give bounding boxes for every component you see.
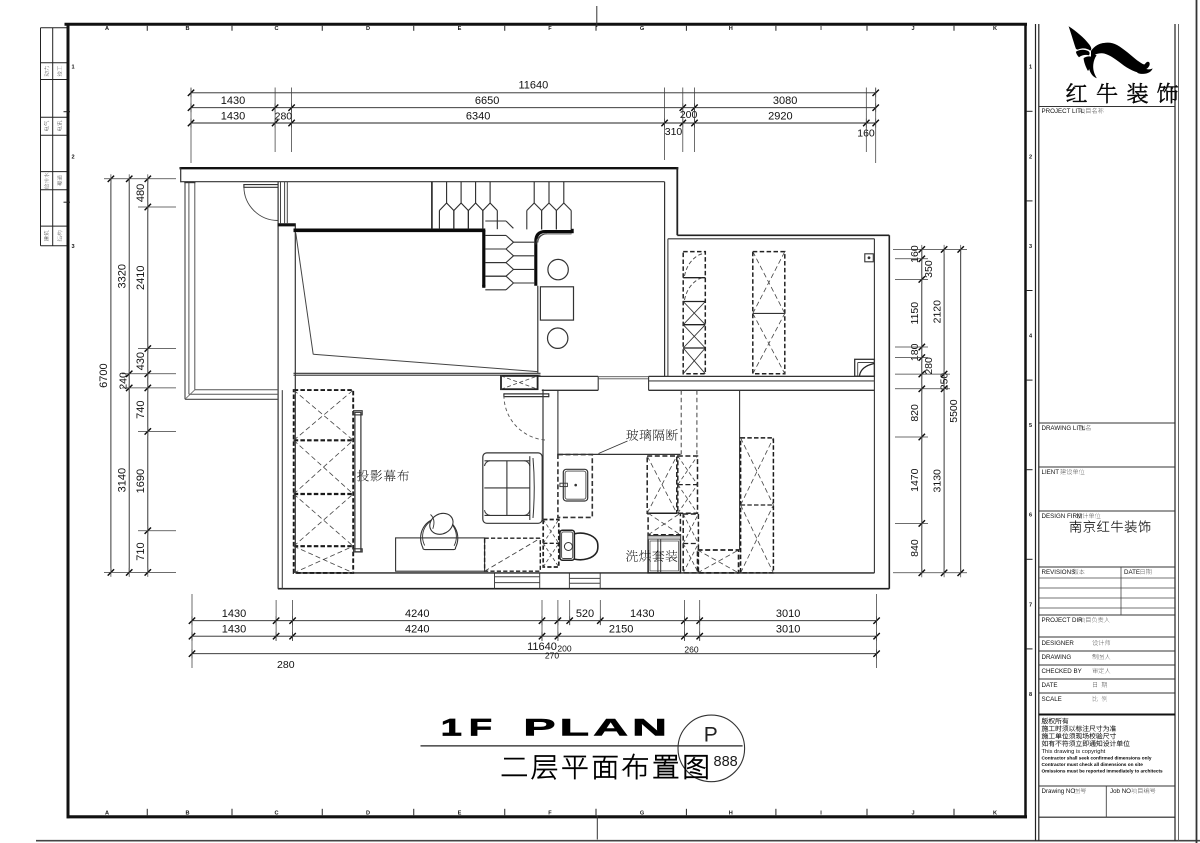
- svg-text:F: F: [548, 810, 552, 816]
- svg-text:3130: 3130: [932, 469, 944, 493]
- svg-text:2: 2: [1029, 154, 1032, 160]
- svg-text:G: G: [640, 810, 644, 816]
- svg-text:480: 480: [135, 184, 147, 202]
- svg-text:2410: 2410: [135, 266, 147, 290]
- svg-text:DATE: DATE: [1124, 569, 1140, 576]
- svg-text:J: J: [911, 810, 914, 816]
- svg-text:DESIGNER: DESIGNER: [1042, 640, 1075, 647]
- svg-text:A: A: [105, 810, 109, 816]
- svg-text:310: 310: [665, 126, 683, 138]
- svg-text:280: 280: [275, 110, 293, 122]
- svg-text:3320: 3320: [117, 264, 129, 288]
- svg-text:520: 520: [576, 608, 594, 620]
- svg-text:3080: 3080: [773, 95, 797, 107]
- svg-text:1430: 1430: [630, 608, 654, 620]
- svg-text:280: 280: [923, 357, 935, 375]
- svg-text:Omissions must be reported imm: Omissions must be reported immediately t…: [1042, 769, 1164, 774]
- svg-text:3: 3: [71, 244, 74, 250]
- svg-text:This drawing is copyright: This drawing is copyright: [1042, 749, 1106, 755]
- svg-text:4240: 4240: [405, 608, 429, 620]
- svg-text:2: 2: [71, 154, 74, 160]
- svg-text:1690: 1690: [135, 469, 147, 493]
- svg-text:5500: 5500: [948, 399, 960, 423]
- svg-text:1: 1: [71, 65, 74, 71]
- svg-text:F: F: [548, 26, 552, 32]
- svg-text:J: J: [911, 26, 914, 32]
- svg-text:740: 740: [135, 401, 147, 419]
- svg-text:820: 820: [909, 404, 921, 422]
- svg-text:A: A: [105, 26, 109, 32]
- svg-text:3010: 3010: [776, 624, 800, 636]
- svg-text:6650: 6650: [475, 95, 499, 107]
- svg-text:DATE: DATE: [1042, 682, 1058, 689]
- svg-text:1150: 1150: [909, 302, 921, 325]
- svg-text:180: 180: [909, 343, 921, 361]
- svg-text:E: E: [458, 810, 462, 816]
- svg-text:200: 200: [557, 644, 571, 654]
- svg-text:6340: 6340: [466, 110, 490, 122]
- svg-text:C: C: [274, 810, 278, 816]
- svg-text:1F: 1F: [441, 713, 499, 741]
- svg-text:B: B: [185, 810, 189, 816]
- svg-text:1430: 1430: [222, 624, 246, 636]
- svg-text:1: 1: [1029, 65, 1032, 71]
- svg-text:710: 710: [135, 542, 147, 560]
- svg-text:LIENT: LIENT: [1042, 469, 1060, 476]
- svg-text:DESIGN FIRM: DESIGN FIRM: [1042, 513, 1083, 520]
- svg-text:DRAWING LITL: DRAWING LITL: [1042, 425, 1086, 432]
- svg-text:1430: 1430: [221, 95, 245, 107]
- svg-text:PROJECT DIR: PROJECT DIR: [1042, 617, 1084, 624]
- svg-text:3010: 3010: [776, 608, 800, 620]
- svg-text:1430: 1430: [221, 110, 245, 122]
- svg-text:7: 7: [1029, 602, 1032, 608]
- svg-text:C: C: [274, 26, 278, 32]
- svg-text:3140: 3140: [117, 468, 129, 492]
- svg-text:280: 280: [277, 659, 295, 671]
- svg-text:SCALE: SCALE: [1042, 696, 1062, 703]
- svg-text:Drawing NO: Drawing NO: [1042, 788, 1076, 795]
- svg-text:6700: 6700: [98, 363, 110, 387]
- svg-text:B: B: [185, 26, 189, 32]
- svg-text:11640: 11640: [519, 79, 549, 91]
- svg-text:430: 430: [135, 352, 147, 370]
- svg-text:2120: 2120: [932, 300, 944, 324]
- svg-text:G: G: [640, 26, 644, 32]
- svg-text:P: P: [704, 724, 718, 747]
- svg-text:CHECKED BY: CHECKED BY: [1042, 668, 1082, 675]
- svg-text:PROJECT LITL: PROJECT LITL: [1042, 108, 1085, 115]
- svg-text:1430: 1430: [222, 608, 246, 620]
- svg-text:2920: 2920: [768, 110, 792, 122]
- svg-text:350: 350: [923, 260, 935, 278]
- svg-text:H: H: [729, 810, 733, 816]
- svg-text:E: E: [458, 26, 462, 32]
- svg-text:REVISIONS: REVISIONS: [1042, 569, 1076, 576]
- svg-text:240: 240: [118, 372, 130, 390]
- svg-text:K: K: [993, 810, 997, 816]
- svg-text:260: 260: [684, 645, 698, 655]
- svg-text:160: 160: [909, 245, 921, 263]
- svg-text:Contractor shall seek confirme: Contractor shall seek confirmed dimensio…: [1042, 756, 1152, 761]
- svg-text:888: 888: [714, 754, 738, 770]
- svg-text:D: D: [366, 26, 370, 32]
- svg-text:PLAN: PLAN: [523, 714, 671, 741]
- svg-text:H: H: [729, 26, 733, 32]
- svg-text:840: 840: [909, 539, 921, 557]
- svg-text:6: 6: [1029, 513, 1032, 519]
- svg-text:5: 5: [1029, 423, 1032, 429]
- svg-text:1470: 1470: [909, 468, 921, 492]
- svg-text:D: D: [366, 810, 370, 816]
- svg-text:Contractor must check all dime: Contractor must check all dimensions on …: [1042, 762, 1144, 767]
- svg-text:4240: 4240: [405, 624, 429, 636]
- svg-text:2150: 2150: [609, 624, 633, 636]
- svg-text:DRAWING: DRAWING: [1042, 654, 1072, 661]
- svg-text:3: 3: [1029, 244, 1032, 250]
- svg-text:K: K: [993, 26, 997, 32]
- svg-text:8: 8: [1029, 692, 1032, 698]
- svg-text:Job NO: Job NO: [1110, 788, 1131, 795]
